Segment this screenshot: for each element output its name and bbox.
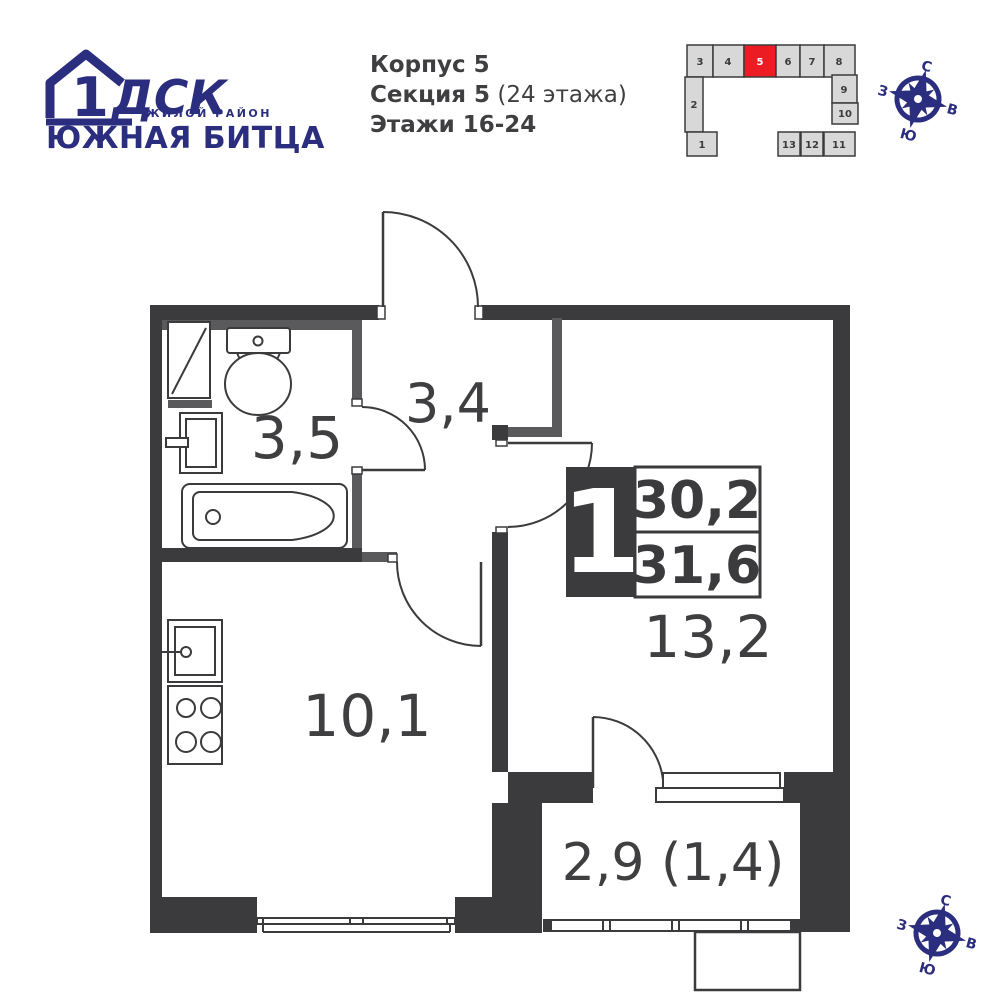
building-section-map: 3 4 5 6 7 8 2 1 9 10 13 12 11 [685, 45, 858, 156]
stove-burner [201, 732, 221, 752]
map-label-3: 3 [697, 57, 704, 68]
compass-rose-top: С В Ю З [867, 49, 969, 154]
rooms-count: 1 [561, 466, 641, 600]
floorplan-canvas: 1 ДСК ЖИЛОЙ РАЙОН ЮЖНАЯ БИТЦА 3 4 5 6 7 [0, 0, 1001, 1001]
compass-north-label: С [939, 892, 953, 910]
compass-north-label: С [920, 58, 934, 76]
map-label-8: 8 [836, 57, 843, 68]
compass-west-label: З [895, 917, 909, 935]
washbasin-tap [166, 438, 188, 447]
map-label-7: 7 [809, 57, 816, 68]
kitchen-window [257, 897, 455, 933]
kitchen-fixtures [160, 620, 222, 764]
map-label-4: 4 [725, 57, 732, 68]
balcony-area-label: 2,9 (1,4) [562, 833, 785, 893]
map-label-10: 10 [838, 109, 852, 120]
compass-south-label: Ю [917, 960, 937, 980]
compass-rose-bottom: С В Ю З [886, 883, 988, 988]
logo-one: 1 [71, 66, 109, 129]
compass-west-label: З [876, 83, 890, 101]
compass-east-label: В [964, 935, 978, 953]
kitchen-area-label: 10,1 [302, 682, 431, 750]
washbasin-inner [186, 419, 216, 467]
hall-area-label: 3,4 [405, 372, 491, 435]
bathroom-area-label: 3,5 [251, 404, 343, 472]
stove-burner [177, 699, 195, 717]
bathtub-drain [206, 510, 220, 524]
stove-burner [176, 732, 196, 752]
room-area-label: 13,2 [643, 603, 772, 671]
map-label-12: 12 [805, 140, 819, 151]
map-label-6: 6 [785, 57, 792, 68]
apartment-info-badge: 1 30,2 31,6 [561, 466, 761, 600]
developer-logo: 1 ДСК ЖИЛОЙ РАЙОН ЮЖНАЯ БИТЦА [46, 54, 325, 156]
map-label-1: 1 [699, 140, 706, 151]
kitchen-tap-base [181, 647, 191, 657]
logo-tagline: ЖИЛОЙ РАЙОН [146, 107, 272, 120]
stove-burner [201, 698, 221, 718]
compass-south-label: Ю [898, 126, 918, 146]
living-area-value: 30,2 [633, 471, 761, 531]
balcony-window [656, 773, 784, 802]
compass-east-label: В [945, 101, 959, 119]
kitchen-door-swing [397, 562, 481, 646]
floorplan-page: { "logo": { "one": "1", "dsk": "ДСК", "t… [0, 0, 1001, 1001]
balcony-door-swing [593, 717, 663, 780]
map-label-11: 11 [832, 140, 846, 151]
entrance-door-swing [383, 212, 478, 307]
map-label-9: 9 [841, 85, 848, 96]
logo-district: ЮЖНАЯ БИТЦА [46, 121, 325, 156]
toilet-button [254, 337, 263, 346]
map-label-5: 5 [757, 57, 764, 68]
exterior-basket [695, 932, 800, 990]
total-area-value: 31,6 [633, 536, 761, 596]
map-label-13: 13 [782, 140, 796, 151]
map-label-2: 2 [691, 100, 698, 111]
